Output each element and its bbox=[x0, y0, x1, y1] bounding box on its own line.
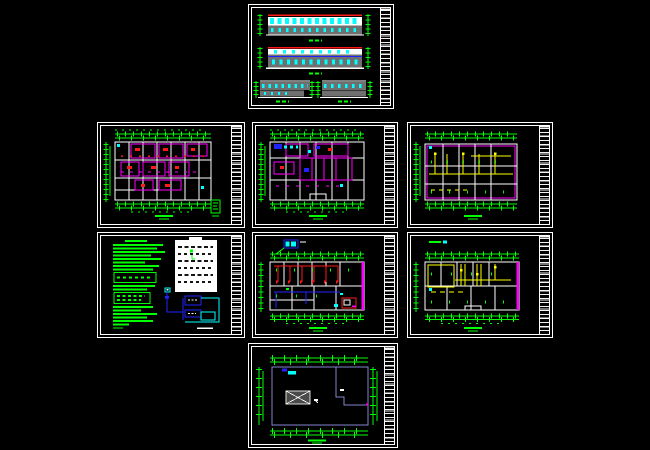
roof-hatch-box bbox=[286, 391, 310, 404]
dimension-left bbox=[106, 142, 110, 202]
sheet-elevations[interactable] bbox=[248, 4, 394, 109]
dimension-left bbox=[261, 142, 265, 202]
elevations-drawing bbox=[252, 8, 380, 105]
notes-text-block bbox=[113, 241, 165, 328]
scale-label bbox=[464, 328, 482, 331]
dimension-left bbox=[416, 142, 420, 202]
dimension-top bbox=[425, 134, 517, 138]
sheet-roof-plan[interactable] bbox=[248, 343, 398, 448]
fixtures bbox=[429, 146, 511, 192]
sheet-lighting-plan[interactable] bbox=[407, 232, 553, 338]
dimension-top bbox=[270, 254, 364, 258]
roof-plan-drawing bbox=[252, 347, 384, 444]
dimension-bottom bbox=[270, 316, 364, 324]
wiring-yellow bbox=[429, 153, 513, 191]
title-block bbox=[539, 126, 549, 224]
sheet-floor-plan-1[interactable] bbox=[97, 122, 245, 228]
riser-diagram bbox=[165, 288, 219, 328]
dimension-bottom bbox=[425, 204, 517, 208]
callout-detail bbox=[429, 241, 447, 244]
sheet-floor-plan-3[interactable] bbox=[407, 122, 553, 228]
notes-drawing bbox=[101, 236, 231, 334]
scale-label bbox=[155, 216, 173, 219]
dimension-top bbox=[270, 130, 364, 138]
floor-plan-2-drawing bbox=[256, 126, 384, 224]
dimension-top bbox=[270, 358, 368, 362]
title-block bbox=[384, 236, 394, 334]
title-block bbox=[231, 126, 241, 224]
cad-paperspace-canvas bbox=[0, 0, 650, 450]
dimension-right bbox=[373, 367, 377, 425]
title-block bbox=[231, 236, 241, 334]
dimension-bottom bbox=[425, 316, 519, 324]
dimension-left bbox=[259, 367, 263, 425]
equipment-detail bbox=[334, 293, 356, 308]
scale-label bbox=[464, 216, 482, 219]
floor-plan-1-drawing bbox=[101, 126, 231, 224]
scale-label bbox=[309, 328, 327, 331]
stamp-detail bbox=[211, 200, 220, 216]
scale-label bbox=[309, 216, 327, 219]
lighting-plan-drawing bbox=[411, 236, 539, 334]
power-plan-drawing bbox=[256, 236, 384, 334]
sheet-notes-legend[interactable] bbox=[97, 232, 245, 338]
dimension-top bbox=[425, 254, 519, 258]
title-block bbox=[384, 347, 394, 444]
plan-walls bbox=[270, 142, 364, 200]
dimension-bottom bbox=[270, 431, 368, 435]
elevation-1 bbox=[260, 14, 368, 41]
floor-plan-3-drawing bbox=[411, 126, 539, 224]
legend-table bbox=[175, 237, 217, 292]
lighting-circuits-yellow bbox=[428, 264, 511, 292]
dimension-top bbox=[115, 130, 211, 138]
sheet-power-plan[interactable] bbox=[252, 232, 398, 338]
title-block bbox=[539, 236, 549, 334]
elevation-4 bbox=[318, 81, 370, 102]
scale-label bbox=[308, 441, 326, 444]
title-block bbox=[384, 126, 394, 224]
title-block bbox=[380, 8, 390, 105]
elevation-3 bbox=[256, 81, 312, 102]
dimension-bottom bbox=[115, 204, 211, 212]
fixtures bbox=[117, 144, 205, 189]
elevation-2 bbox=[260, 47, 368, 74]
plan-walls bbox=[425, 262, 519, 310]
dimension-bottom bbox=[270, 204, 364, 212]
sheet-floor-plan-2[interactable] bbox=[252, 122, 398, 228]
